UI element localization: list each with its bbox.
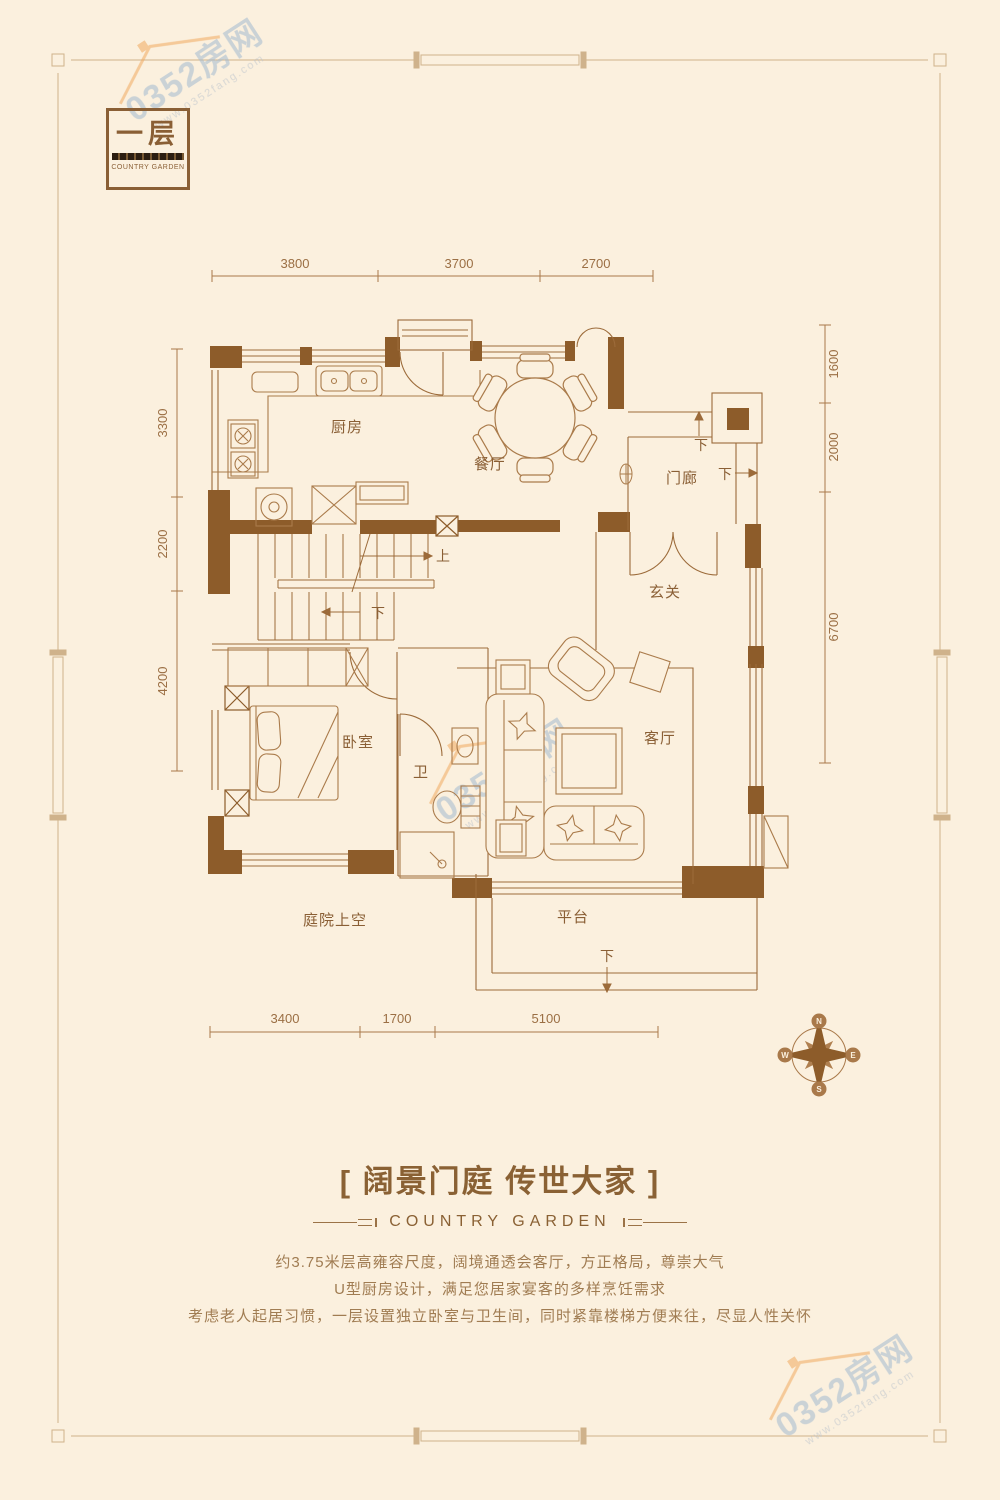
dim-right-3: 6700 — [826, 613, 841, 642]
page-title: [ 阔景门庭 传世大家 ] — [0, 1156, 1000, 1201]
subtitle-bar-left — [375, 1218, 377, 1227]
dim-bottom-1: 3400 — [271, 1011, 300, 1026]
dim-top-2: 3700 — [445, 256, 474, 271]
subtitle-tick-right — [628, 1219, 642, 1226]
compass-e: E — [850, 1051, 856, 1060]
porch-fixture — [620, 464, 632, 484]
brand-subtitle-row: COUNTRY GARDEN — [0, 1213, 1000, 1231]
label-stairs-up: 上 — [436, 548, 450, 564]
subtitle-line-left — [313, 1222, 357, 1223]
frame-window-motif-bottom — [414, 1428, 586, 1444]
dim-right-1: 1600 — [826, 350, 841, 379]
dim-bottom-2: 1700 — [383, 1011, 412, 1026]
floor-badge-divider — [112, 153, 184, 160]
dim-left-2: 2200 — [155, 530, 170, 559]
label-porch-down-2: 下 — [718, 466, 732, 482]
description-line-2: U型厨房设计，满足您居家宴客的多样烹饪需求 — [0, 1278, 1000, 1299]
label-stairs-down: 下 — [371, 605, 385, 621]
floor-plan-canvas: 0352房网 www.0352fang.com 0352房网 www.0352f… — [0, 0, 1000, 1500]
compass: N E S W — [778, 1014, 861, 1097]
subtitle-tick-left — [358, 1219, 372, 1226]
direction-arrows — [603, 412, 757, 992]
compass-n: N — [816, 1017, 822, 1026]
dim-right-2: 2000 — [826, 433, 841, 462]
label-living: 客厅 — [644, 730, 676, 747]
kitchen-fixtures — [212, 366, 480, 526]
label-foyer: 玄关 — [649, 584, 681, 601]
frame-window-motif-right — [934, 650, 950, 820]
floor-badge-label: 一层 — [116, 119, 180, 149]
label-dining: 餐厅 — [474, 456, 506, 473]
brand-subtitle: COUNTRY GARDEN — [389, 1213, 610, 1231]
direction-labels: 上 下 下 下 下 — [371, 437, 732, 964]
dim-top-1: 3800 — [281, 256, 310, 271]
label-terrace: 平台 — [557, 909, 589, 926]
dim-bottom-3: 5100 — [532, 1011, 561, 1026]
frame-window-motif-top — [414, 52, 586, 68]
description-line-3: 考虑老人起居习惯，一层设置独立卧室与卫生间，同时紧靠楼梯方便来往，尽显人性关怀 — [0, 1305, 1000, 1326]
dim-left-1: 3300 — [155, 409, 170, 438]
label-bath: 卫 — [413, 764, 429, 781]
compass-s: S — [816, 1085, 822, 1094]
compass-w: W — [781, 1051, 789, 1060]
dim-top-3: 2700 — [582, 256, 611, 271]
label-kitchen: 厨房 — [331, 419, 363, 436]
subtitle-bar-right — [623, 1218, 625, 1227]
description-line-1: 约3.75米层高雍容尺度，阔境通透会客厅，方正格局，尊崇大气 — [0, 1251, 1000, 1272]
floor-badge: 一层 COUNTRY GARDEN — [106, 108, 190, 190]
bedroom-furniture — [228, 648, 368, 800]
label-bedroom: 卧室 — [342, 734, 374, 751]
label-courtyard: 庭院上空 — [303, 911, 367, 929]
dim-left-3: 4200 — [155, 667, 170, 696]
label-terrace-down: 下 — [600, 948, 614, 964]
label-porch-down-1: 下 — [694, 437, 708, 453]
frame-window-motif-left — [50, 650, 66, 820]
staircase — [258, 534, 434, 640]
label-porch: 门廊 — [666, 470, 698, 487]
subtitle-line-right — [643, 1222, 687, 1223]
floor-badge-brand: COUNTRY GARDEN — [111, 164, 184, 171]
